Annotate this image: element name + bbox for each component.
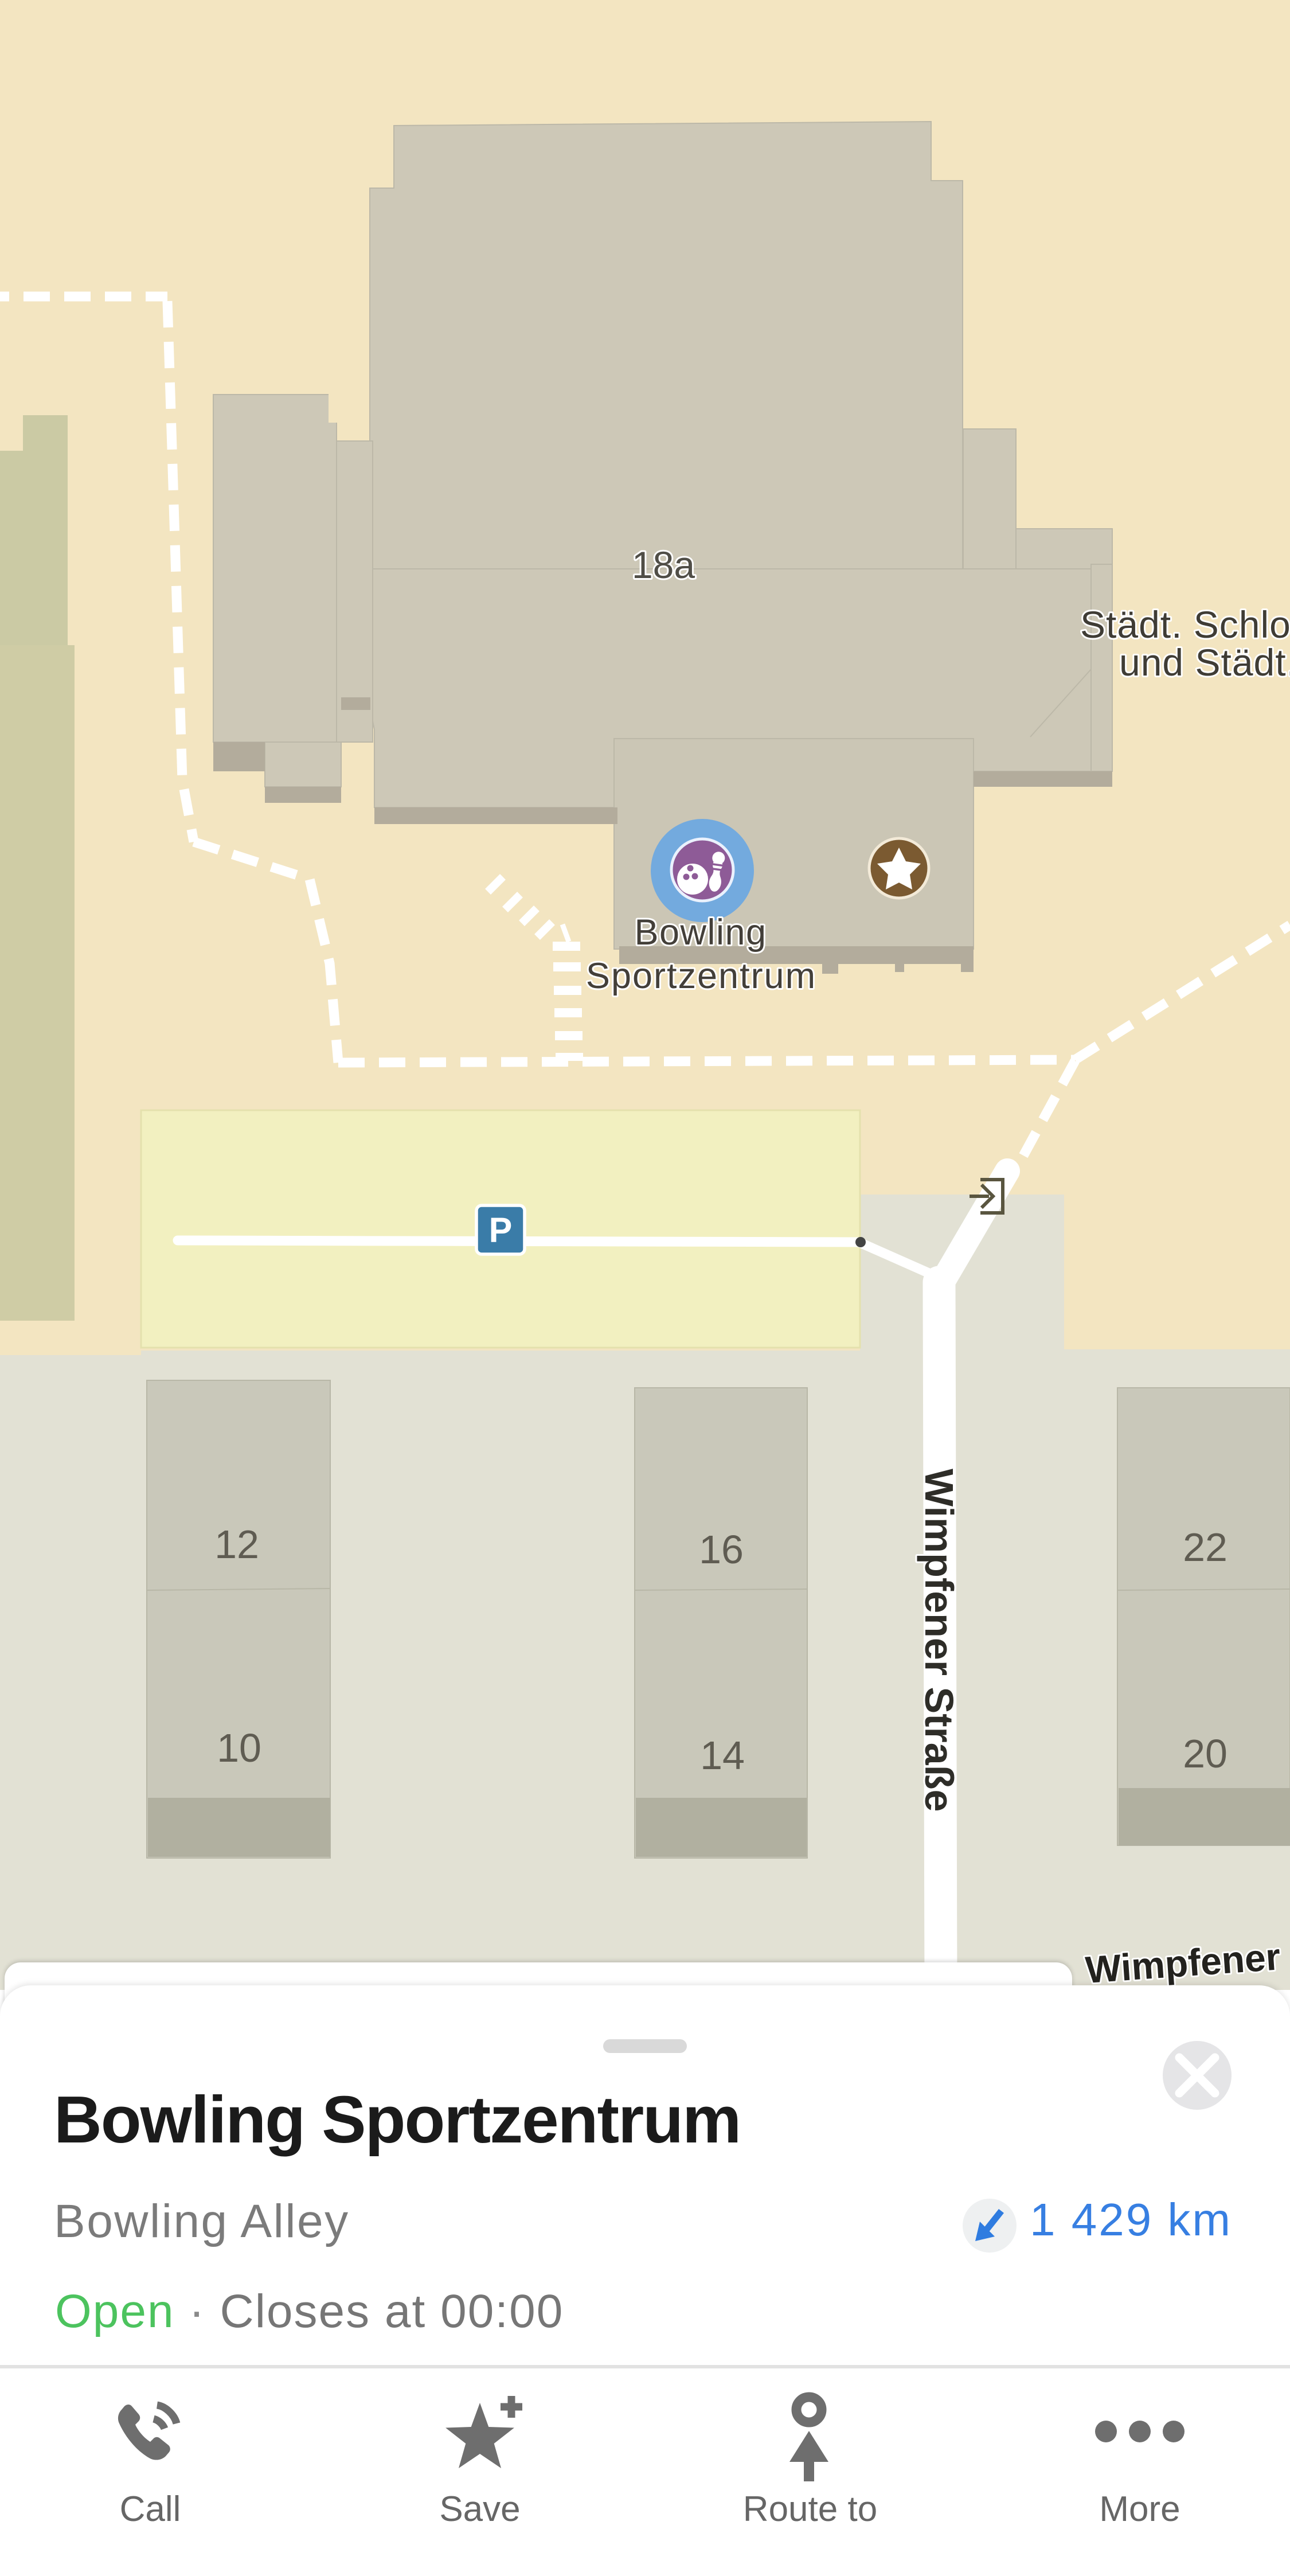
- svg-text:20: 20: [1183, 1731, 1228, 1776]
- svg-text:Bowling: Bowling: [634, 912, 767, 953]
- svg-text:Wimpfener Straße: Wimpfener Straße: [917, 1469, 961, 1812]
- svg-text:Städt. Schloßb: Städt. Schloßb: [1080, 603, 1290, 646]
- svg-text:P: P: [489, 1211, 513, 1250]
- svg-text:18a: 18a: [632, 544, 695, 586]
- svg-text:16: 16: [699, 1527, 744, 1572]
- svg-text:12: 12: [214, 1522, 259, 1567]
- svg-text:22: 22: [1183, 1525, 1228, 1570]
- svg-text:Sportzentrum: Sportzentrum: [586, 956, 816, 996]
- svg-text:10: 10: [217, 1726, 261, 1770]
- svg-text:14: 14: [700, 1733, 745, 1778]
- svg-text:und Städt.: und Städt.: [1119, 641, 1290, 684]
